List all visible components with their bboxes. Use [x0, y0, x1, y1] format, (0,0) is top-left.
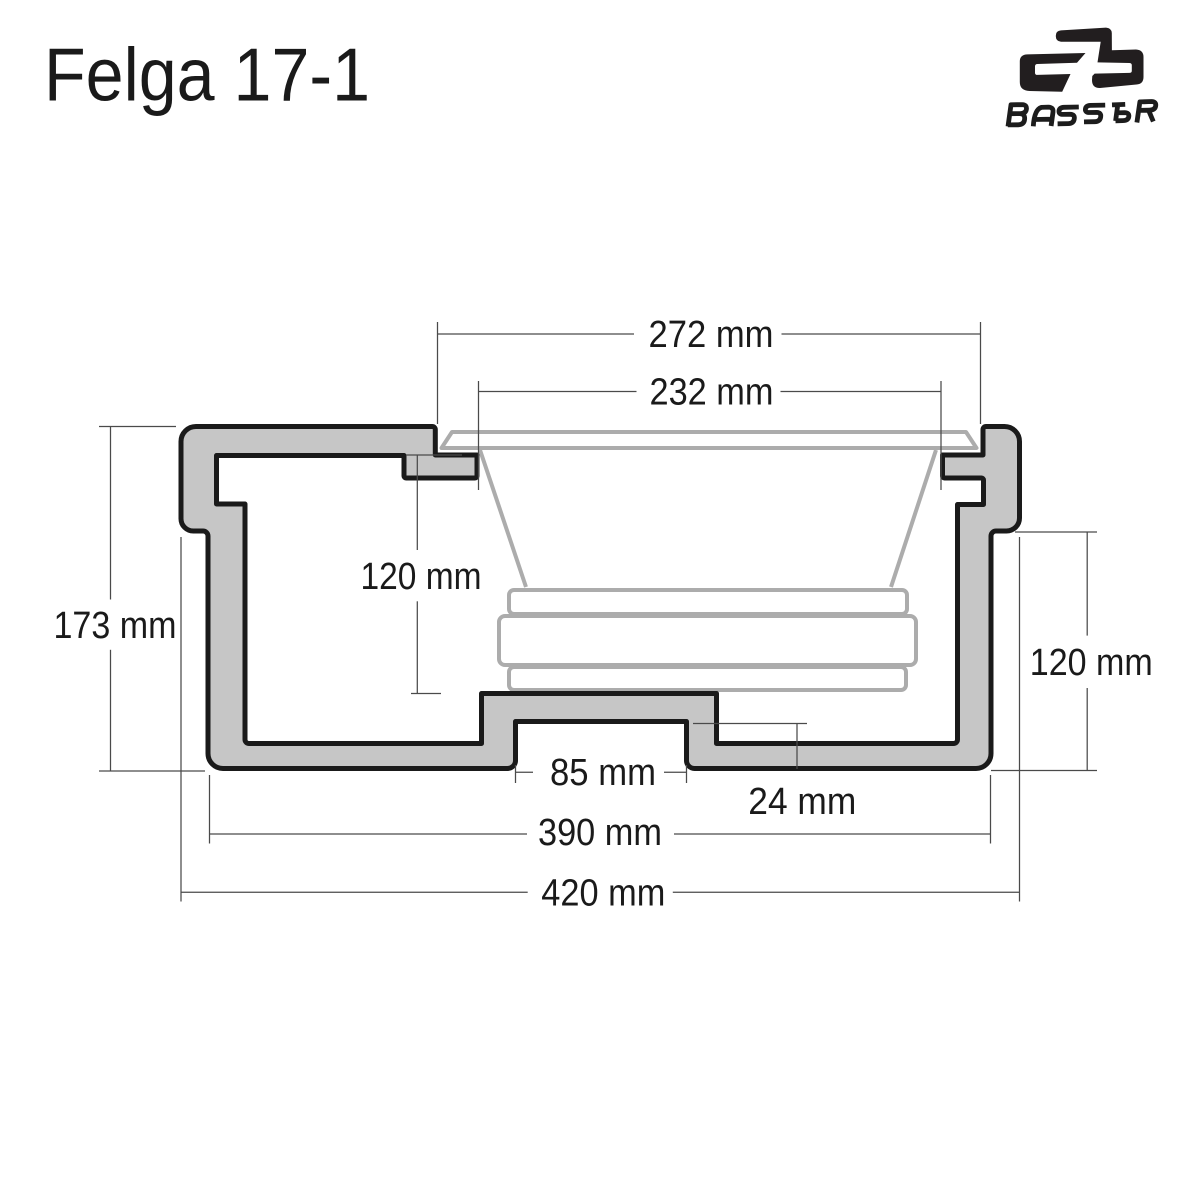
- svg-text:120 mm: 120 mm: [361, 556, 482, 598]
- svg-text:232 mm: 232 mm: [650, 372, 774, 414]
- svg-text:120 mm: 120 mm: [1030, 642, 1153, 684]
- svg-text:24 mm: 24 mm: [748, 781, 856, 823]
- svg-text:Felga 17-1: Felga 17-1: [44, 32, 370, 116]
- svg-text:85 mm: 85 mm: [550, 752, 656, 794]
- svg-text:173 mm: 173 mm: [54, 605, 177, 647]
- svg-text:420 mm: 420 mm: [541, 872, 665, 914]
- svg-text:272 mm: 272 mm: [649, 314, 774, 356]
- svg-text:390 mm: 390 mm: [538, 812, 662, 854]
